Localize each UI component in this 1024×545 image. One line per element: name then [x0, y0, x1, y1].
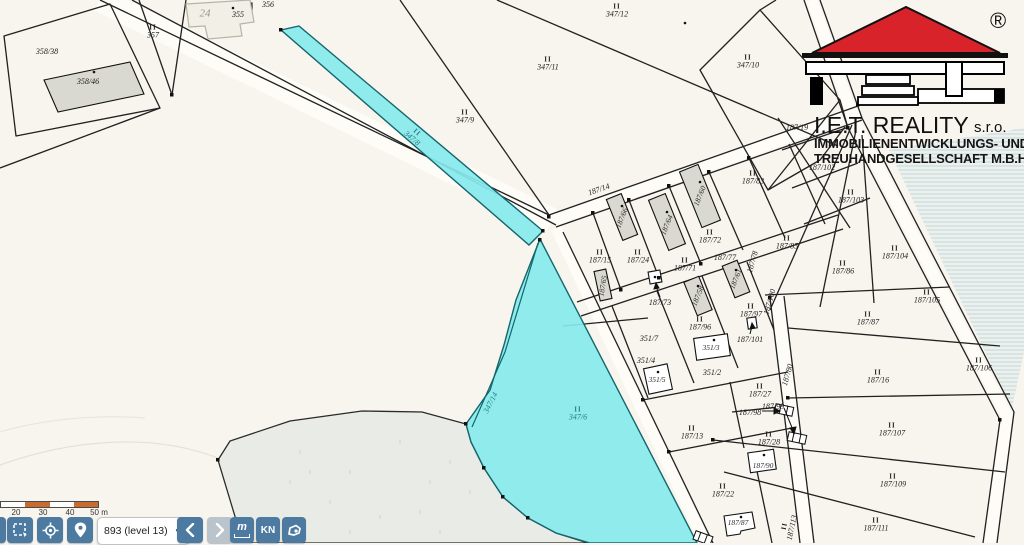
- previous-extent-button[interactable]: [177, 517, 203, 543]
- scale-bar-segments: [0, 501, 99, 508]
- cadastral-map[interactable]: 358/38358/46II35724355356II347/12II347/1…: [0, 0, 1024, 543]
- chevron-right-icon: [215, 523, 225, 537]
- scale-label: 50 m: [90, 508, 108, 517]
- measure-button[interactable]: m: [230, 517, 254, 543]
- map-application: { "logo": { "registered": "®", "title": …: [0, 0, 1024, 543]
- chevron-left-icon: [185, 523, 195, 537]
- measure-icon: m: [234, 522, 250, 538]
- zoom-level-value: 893 (level 13): [104, 525, 168, 537]
- scale-label: 20: [12, 508, 21, 517]
- map-toolbar: 893 (level 13) ▼ m KN: [0, 517, 320, 543]
- clipped-button[interactable]: [0, 517, 6, 543]
- scale-bar: 20304050 m: [0, 500, 100, 518]
- locate-button[interactable]: [37, 517, 63, 543]
- zoom-level-select[interactable]: 893 (level 13) ▼: [97, 517, 189, 545]
- scale-label: 30: [39, 508, 48, 517]
- polygon-icon: [287, 524, 302, 537]
- kn-label: KN: [261, 525, 275, 536]
- select-extent-button[interactable]: [7, 517, 33, 543]
- marker-icon: [74, 522, 87, 538]
- locate-icon: [42, 522, 59, 539]
- marker-button[interactable]: [67, 517, 93, 543]
- map-canvas: [0, 0, 1024, 543]
- scale-label: 40: [66, 508, 75, 517]
- kn-button[interactable]: KN: [256, 517, 280, 543]
- polygon-select-button[interactable]: [282, 517, 306, 543]
- select-extent-icon: [13, 523, 28, 538]
